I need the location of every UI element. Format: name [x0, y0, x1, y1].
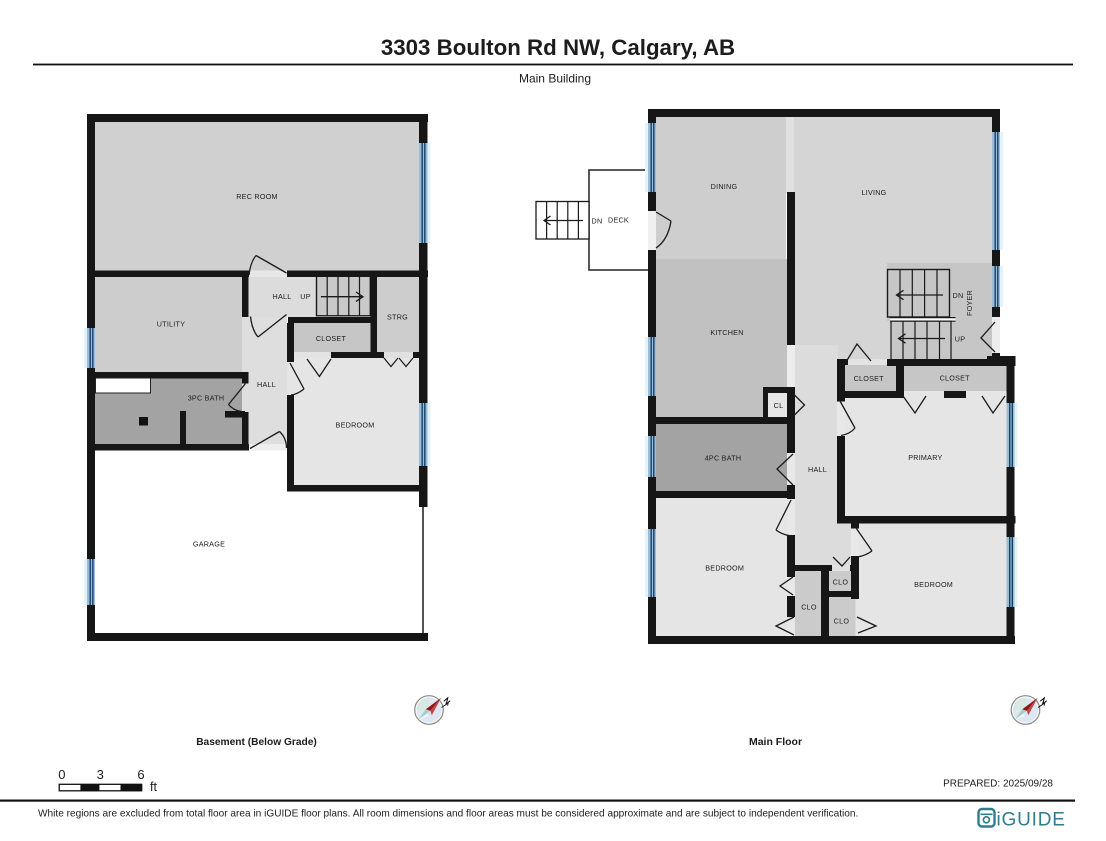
- svg-text:LIVING: LIVING: [861, 188, 886, 197]
- svg-text:CLO: CLO: [833, 577, 849, 586]
- svg-text:UP: UP: [300, 292, 311, 301]
- svg-text:UTILITY: UTILITY: [157, 320, 186, 329]
- svg-text:CLO: CLO: [834, 616, 850, 625]
- svg-text:HALL: HALL: [273, 292, 292, 301]
- svg-text:PRIMARY: PRIMARY: [908, 453, 942, 462]
- svg-text:Basement (Below Grade): Basement (Below Grade): [196, 737, 317, 748]
- svg-text:REC ROOM: REC ROOM: [236, 192, 278, 201]
- svg-text:HALL: HALL: [808, 465, 827, 474]
- svg-text:CLOSET: CLOSET: [316, 334, 347, 343]
- svg-text:3PC BATH: 3PC BATH: [188, 394, 225, 403]
- svg-text:4PC BATH: 4PC BATH: [705, 454, 742, 463]
- svg-text:CLO: CLO: [801, 603, 817, 612]
- svg-text:KITCHEN: KITCHEN: [710, 328, 743, 337]
- svg-text:iGUIDE: iGUIDE: [997, 810, 1066, 831]
- svg-text:STRG: STRG: [387, 313, 408, 322]
- svg-text:PREPARED: 2025/09/28: PREPARED: 2025/09/28: [943, 779, 1053, 790]
- svg-text:DN: DN: [592, 217, 603, 226]
- svg-text:DINING: DINING: [711, 182, 738, 191]
- svg-text:BEDROOM: BEDROOM: [336, 421, 375, 430]
- svg-text:CL: CL: [774, 401, 784, 410]
- svg-text:CLOSET: CLOSET: [940, 374, 971, 383]
- svg-text:FOYER: FOYER: [965, 290, 974, 316]
- svg-text:Main Floor: Main Floor: [749, 736, 802, 748]
- svg-text:0: 0: [58, 767, 65, 782]
- svg-text:BEDROOM: BEDROOM: [705, 564, 744, 573]
- svg-text:White regions are excluded fro: White regions are excluded from total fl…: [38, 809, 858, 820]
- svg-text:ft: ft: [150, 780, 157, 794]
- svg-text:CLOSET: CLOSET: [854, 374, 885, 383]
- svg-text:DECK: DECK: [608, 216, 629, 225]
- svg-text:BEDROOM: BEDROOM: [914, 580, 953, 589]
- svg-text:DN: DN: [953, 291, 964, 300]
- svg-text:HALL: HALL: [257, 380, 276, 389]
- svg-text:6: 6: [137, 767, 144, 782]
- svg-text:UP: UP: [955, 335, 966, 344]
- svg-text:3: 3: [97, 767, 104, 782]
- svg-text:GARAGE: GARAGE: [193, 540, 225, 549]
- svg-text:Main Building: Main Building: [519, 72, 591, 86]
- svg-text:3303 Boulton Rd NW, Calgary, A: 3303 Boulton Rd NW, Calgary, AB: [381, 35, 735, 60]
